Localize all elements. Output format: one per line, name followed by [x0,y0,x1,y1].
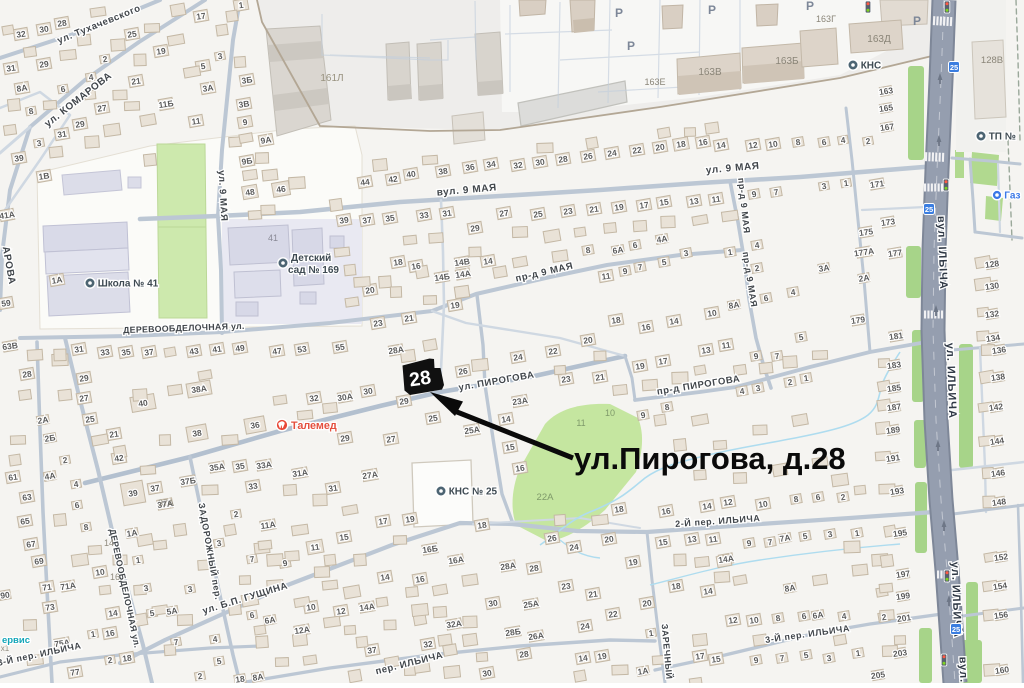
svg-text:20: 20 [583,334,594,345]
svg-text:30А: 30А [337,391,354,403]
svg-text:15: 15 [505,441,516,452]
svg-text:16: 16 [110,572,120,582]
svg-text:41: 41 [212,343,223,354]
svg-text:14А: 14А [455,268,472,280]
svg-text:23: 23 [561,373,572,384]
svg-text:48: 48 [245,186,256,197]
svg-text:27: 27 [97,102,108,113]
svg-text:199: 199 [895,590,911,602]
svg-text:10: 10 [758,498,769,509]
svg-text:2А: 2А [37,414,49,425]
svg-text:163Д: 163Д [867,34,891,45]
svg-text:27А: 27А [362,469,379,481]
svg-text:25: 25 [952,625,960,634]
svg-text:Р: Р [615,6,623,20]
svg-text:22: 22 [608,608,619,619]
svg-text:13: 13 [701,344,712,355]
svg-text:26А: 26А [528,630,545,642]
svg-text:179: 179 [850,314,866,326]
svg-text:20: 20 [365,284,376,295]
svg-text:23: 23 [561,580,572,591]
svg-text:33А: 33А [256,459,273,471]
svg-text:11: 11 [721,339,732,350]
svg-text:15: 15 [658,536,669,547]
svg-text:23: 23 [563,205,574,216]
svg-text:Р: Р [708,3,716,17]
svg-text:30: 30 [535,156,546,167]
svg-text:31: 31 [74,343,85,354]
svg-text:73: 73 [45,601,56,612]
svg-text:29: 29 [75,118,86,129]
svg-text:37: 37 [362,214,373,225]
svg-text:185: 185 [886,382,902,394]
svg-text:37: 37 [150,482,161,493]
svg-text:37Б: 37Б [180,475,197,487]
svg-text:31: 31 [442,207,453,218]
svg-text:30: 30 [482,667,493,678]
svg-text:14А: 14А [718,553,735,565]
svg-text:14: 14 [501,413,512,424]
svg-text:39: 39 [14,152,25,163]
svg-text:17: 17 [196,10,207,21]
svg-text:14Б: 14Б [434,271,451,283]
svg-text:23: 23 [373,317,384,328]
svg-text:19: 19 [614,201,625,212]
svg-text:33: 33 [248,480,259,491]
svg-text:17: 17 [639,199,650,210]
svg-text:21: 21 [131,75,142,86]
svg-text:65: 65 [20,515,31,526]
svg-text:4А: 4А [656,233,668,244]
svg-text:25: 25 [925,205,933,214]
svg-text:32: 32 [309,392,320,403]
svg-text:30: 30 [39,23,50,34]
svg-text:156: 156 [993,609,1009,621]
svg-text:16: 16 [641,321,652,332]
svg-text:177: 177 [887,247,903,259]
svg-text:18: 18 [477,519,488,530]
svg-text:16А: 16А [448,554,465,566]
svg-text:14А: 14А [359,601,376,613]
svg-text:12: 12 [728,614,739,625]
svg-text:10: 10 [749,614,760,625]
svg-text:181: 181 [888,330,904,342]
svg-text:Р: Р [627,39,635,53]
svg-text:20: 20 [642,597,653,608]
svg-text:29: 29 [340,432,351,443]
svg-text:8А: 8А [16,82,28,93]
svg-text:71: 71 [42,581,53,592]
svg-text:35: 35 [121,346,132,357]
svg-text:46: 46 [276,183,287,194]
svg-text:38А: 38А [191,383,208,395]
svg-text:27: 27 [386,433,397,444]
svg-text:7А: 7А [779,532,791,543]
svg-text:30: 30 [363,385,374,396]
svg-text:71А: 71А [60,580,77,592]
svg-text:32: 32 [16,28,27,39]
svg-text:Р: Р [913,14,921,28]
svg-text:201: 201 [896,612,912,624]
svg-text:20: 20 [604,533,615,544]
svg-text:28: 28 [57,17,68,28]
svg-text:22А: 22А [537,492,555,503]
svg-text:38: 38 [438,165,449,176]
svg-text:18: 18 [614,503,625,514]
svg-text:12А: 12А [294,624,311,636]
svg-text:31: 31 [6,62,17,73]
svg-text:14: 14 [669,315,680,326]
svg-text:22: 22 [548,345,559,356]
svg-text:183: 183 [886,359,902,371]
svg-text:ул.Пирогова, д.28: ул.Пирогова, д.28 [574,441,846,476]
svg-text:КНС № 25: КНС № 25 [449,487,498,498]
svg-text:173: 173 [880,216,896,228]
svg-text:31А: 31А [292,467,309,479]
svg-text:28: 28 [22,368,33,379]
svg-text:14: 14 [108,607,119,618]
svg-text:сад № 169: сад № 169 [288,265,339,276]
svg-text:187: 187 [886,401,902,413]
svg-text:3А: 3А [818,262,830,273]
svg-text:144: 144 [989,435,1005,447]
svg-text:2Б: 2Б [44,432,56,443]
svg-text:КНС: КНС [861,61,882,72]
svg-text:42: 42 [114,452,125,463]
svg-text:61: 61 [8,471,19,482]
svg-text:30: 30 [488,597,499,608]
svg-text:43: 43 [189,345,200,356]
svg-text:вул.: вул. [957,656,970,683]
svg-text:19: 19 [450,299,461,310]
svg-text:2А: 2А [858,272,870,283]
svg-text:29: 29 [79,372,90,383]
svg-text:Школа № 41: Школа № 41 [98,279,159,290]
svg-text:19: 19 [156,45,167,56]
svg-text:28: 28 [529,562,540,573]
svg-text:163Е: 163Е [644,77,665,87]
svg-text:25: 25 [428,412,439,423]
svg-text:14: 14 [483,255,494,266]
svg-text:132: 132 [984,308,1000,320]
svg-text:25А: 25А [523,598,540,610]
svg-text:Р: Р [806,0,814,13]
svg-text:17: 17 [695,650,706,661]
svg-text:26: 26 [458,365,469,376]
svg-text:128В: 128В [981,55,1003,66]
svg-text:11: 11 [601,270,612,281]
svg-text:21: 21 [595,371,606,382]
svg-text:69: 69 [34,555,45,566]
svg-text:128: 128 [984,258,1000,270]
svg-text:14: 14 [703,585,714,596]
svg-text:14: 14 [702,500,713,511]
svg-text:8А: 8А [252,671,264,682]
svg-text:6А: 6А [264,614,276,625]
svg-text:24: 24 [580,620,591,631]
svg-text:163В: 163В [698,67,722,78]
svg-text:163Г: 163Г [816,14,836,24]
svg-text:44: 44 [360,176,371,187]
svg-text:21: 21 [588,588,599,599]
svg-text:18: 18 [611,314,622,325]
svg-text:28: 28 [519,648,530,659]
svg-text:13: 13 [687,533,698,544]
svg-text:165: 165 [878,102,894,114]
svg-text:28Б: 28Б [505,626,522,638]
svg-text:21: 21 [404,312,415,323]
svg-text:18: 18 [676,138,687,149]
svg-text:3В: 3В [238,98,250,109]
svg-text:12: 12 [748,139,759,150]
svg-text:160: 160 [994,664,1010,676]
svg-text:11: 11 [191,115,202,126]
svg-text:29: 29 [470,222,481,233]
svg-text:21: 21 [109,428,120,439]
svg-text:ТП №: ТП № [989,132,1016,143]
svg-text:47: 47 [272,345,283,356]
svg-text:136: 136 [991,344,1007,356]
svg-text:14В: 14В [454,256,471,268]
svg-text:12: 12 [336,605,347,616]
svg-text:10: 10 [707,307,718,318]
svg-text:27: 27 [79,392,90,403]
svg-text:15: 15 [339,531,350,542]
svg-text:6А: 6А [812,609,824,620]
svg-text:25: 25 [85,413,96,424]
svg-text:14: 14 [578,652,589,663]
svg-text:Газ: Газ [1004,191,1020,202]
svg-text:21: 21 [589,203,600,214]
svg-text:163Б: 163Б [775,56,799,67]
svg-text:40: 40 [138,397,149,408]
svg-text:23А: 23А [512,395,529,407]
svg-text:11: 11 [708,533,719,544]
svg-text:37: 37 [367,644,378,655]
svg-text:32: 32 [423,638,434,649]
svg-text:63В: 63В [2,340,19,352]
svg-text:1А: 1А [126,527,138,538]
svg-text:29: 29 [399,395,410,406]
svg-text:53: 53 [297,343,308,354]
svg-text:3Б: 3Б [241,74,253,85]
svg-text:28А: 28А [500,560,517,572]
svg-text:1А: 1А [51,274,63,285]
svg-text:41: 41 [268,233,278,243]
svg-text:189: 189 [885,424,901,436]
svg-text:26: 26 [547,532,558,543]
svg-text:31: 31 [57,128,68,139]
svg-text:24: 24 [513,351,524,362]
svg-text:1А: 1А [637,665,649,676]
svg-text:9А: 9А [260,134,272,145]
svg-text:35: 35 [385,212,396,223]
svg-text:19: 19 [635,360,646,371]
svg-text:171: 171 [869,178,885,190]
svg-text:16: 16 [698,136,709,147]
svg-text:42: 42 [388,173,399,184]
svg-text:142: 142 [988,401,1004,413]
svg-text:25: 25 [127,28,138,39]
svg-text:191: 191 [885,452,901,464]
svg-text:22: 22 [632,144,643,155]
svg-text:152: 152 [993,551,1009,563]
svg-text:36: 36 [465,161,476,172]
svg-text:39: 39 [128,487,139,498]
svg-text:10: 10 [605,408,615,418]
svg-text:37: 37 [144,346,155,357]
svg-text:13: 13 [689,195,700,206]
svg-text:32А: 32А [446,618,463,630]
svg-text:31: 31 [328,482,339,493]
svg-text:14: 14 [380,571,391,582]
svg-text:16: 16 [515,462,526,473]
svg-text:55: 55 [335,341,346,352]
svg-text:16: 16 [415,573,426,584]
svg-text:40: 40 [406,168,417,179]
svg-text:25: 25 [533,208,544,219]
svg-text:195: 195 [892,527,908,539]
svg-text:Детский: Детский [291,253,331,264]
svg-text:33: 33 [419,209,430,220]
svg-text:14: 14 [716,139,727,150]
svg-text:35А: 35А [209,461,226,473]
svg-text:28: 28 [408,367,433,392]
svg-text:10: 10 [95,566,106,577]
svg-text:77: 77 [70,666,81,677]
svg-text:175: 175 [858,226,874,238]
svg-text:19: 19 [405,513,416,524]
svg-text:9Б: 9Б [241,155,253,166]
svg-text:1В: 1В [38,170,50,181]
svg-text:39: 39 [339,214,350,225]
svg-text:49: 49 [235,342,246,353]
svg-text:4А: 4А [44,470,56,481]
svg-text:10: 10 [768,138,779,149]
svg-text:36: 36 [250,419,261,430]
svg-text:11: 11 [711,193,722,204]
svg-text:197: 197 [895,568,911,580]
svg-text:18: 18 [235,673,246,683]
svg-text:25А: 25А [464,424,481,436]
svg-text:6А: 6А [612,244,624,255]
svg-text:ервис: ервис [2,635,30,646]
svg-text:15: 15 [711,653,722,664]
svg-text:29: 29 [39,58,50,69]
svg-text:34: 34 [486,158,497,169]
svg-text:193: 193 [889,485,905,497]
svg-text:161Л: 161Л [320,73,343,84]
svg-text:17: 17 [378,515,389,526]
svg-text:11Б: 11Б [158,98,174,110]
svg-text:3А: 3А [202,82,214,93]
svg-text:59: 59 [1,297,12,308]
svg-text:130: 130 [984,280,1000,292]
svg-text:16: 16 [411,260,422,271]
svg-text:146: 146 [990,467,1006,479]
svg-text:148: 148 [991,496,1007,508]
svg-text:11: 11 [310,541,321,552]
svg-text:37А: 37А [158,498,174,508]
svg-text:63: 63 [22,491,33,502]
svg-text:Талемед: Талемед [291,420,337,432]
svg-text:163: 163 [878,85,894,97]
svg-text:32: 32 [513,159,524,170]
svg-text:26: 26 [583,150,594,161]
svg-text:203: 203 [892,647,908,659]
svg-text:11А: 11А [260,519,276,531]
svg-text:18: 18 [122,652,133,663]
svg-text:16Б: 16Б [422,543,439,555]
svg-text:38: 38 [192,427,203,438]
svg-text:15: 15 [659,196,670,207]
svg-text:24: 24 [569,541,580,552]
svg-text:19: 19 [628,556,639,567]
svg-text:90: 90 [0,589,11,600]
svg-text:17: 17 [658,355,669,366]
svg-text:27: 27 [499,207,510,218]
svg-text:28: 28 [558,153,569,164]
svg-text:16: 16 [105,627,116,638]
svg-text:8А: 8А [784,582,796,593]
svg-text:20: 20 [655,141,666,152]
svg-text:5А: 5А [166,605,178,616]
svg-text:28А: 28А [388,344,405,356]
svg-text:18: 18 [393,256,404,267]
svg-text:154: 154 [992,580,1008,592]
svg-text:24: 24 [607,147,618,158]
svg-text:11: 11 [576,418,585,428]
svg-text:67: 67 [26,538,37,549]
svg-text:10: 10 [306,601,317,612]
svg-text:8А: 8А [728,299,740,310]
svg-text:134: 134 [985,332,1001,344]
svg-text:12: 12 [723,496,734,507]
svg-text:18: 18 [671,580,682,591]
svg-text:138: 138 [990,371,1006,383]
svg-text:25: 25 [950,63,958,72]
svg-text:33: 33 [100,346,111,357]
svg-text:205: 205 [870,669,886,681]
svg-text:167: 167 [879,121,895,133]
svg-text:19: 19 [597,650,608,661]
svg-text:16: 16 [661,505,672,516]
svg-text:14: 14 [104,538,114,548]
svg-text:35: 35 [235,460,246,471]
